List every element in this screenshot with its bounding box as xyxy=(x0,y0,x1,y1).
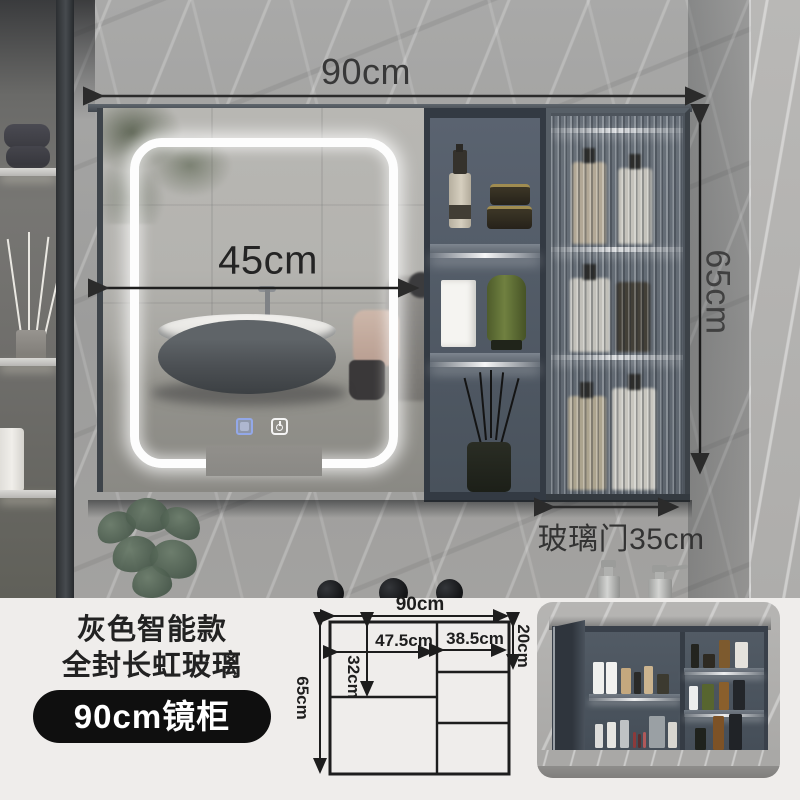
diffuser-vessel xyxy=(16,330,46,360)
height-dimension-label: 65cm xyxy=(698,249,737,334)
glass-door-dimension-label: 玻璃门35cm xyxy=(538,514,705,558)
thumb-jar xyxy=(703,654,715,668)
shelf-board xyxy=(430,353,540,362)
diagram-door-width-label: 38.5cm xyxy=(446,629,504,649)
niche-shelf xyxy=(0,358,56,366)
thumb-tube xyxy=(621,668,631,694)
size-badge: 90cm镜柜 xyxy=(33,690,271,743)
thumb-led xyxy=(589,698,680,701)
spray-bottle xyxy=(449,173,471,228)
marble-light-panel xyxy=(751,0,800,598)
thumb-pump-bottle xyxy=(713,716,724,750)
diagram-upper-height-label: 32cm xyxy=(343,655,363,698)
towel-roll xyxy=(4,124,50,148)
diagram-width-label: 90cm xyxy=(396,594,445,616)
shelf-led-strip xyxy=(430,362,540,367)
width-dimension-label: 90cm xyxy=(321,51,411,93)
spec-diagram-lines xyxy=(285,594,535,794)
thumb-flask xyxy=(657,674,669,694)
led-mirror-door xyxy=(97,108,424,492)
reed-diffuser xyxy=(467,442,511,492)
thumb-led xyxy=(684,714,764,717)
side-niche xyxy=(0,0,56,598)
thumb-pump-bottle xyxy=(729,714,742,750)
thumb-bottle xyxy=(668,722,677,748)
spec-diagram: 90cm 65cm 47.5cm 38.5cm 32cm 20cm xyxy=(285,594,535,794)
thumb-floor xyxy=(537,766,780,778)
diffuser-stick xyxy=(490,370,492,438)
led-border-gap xyxy=(206,446,322,476)
thumb-bottle xyxy=(719,682,729,710)
thumb-bottle xyxy=(607,722,616,748)
diagram-height-label: 65cm xyxy=(292,676,312,719)
led-light-border xyxy=(130,138,398,468)
shelf-board xyxy=(430,244,540,253)
thumb-lipstick xyxy=(643,732,646,748)
green-tube-cap xyxy=(491,340,522,350)
title-line-1: 灰色智能款 xyxy=(18,612,286,648)
thumb-led xyxy=(684,672,764,675)
info-panel: 灰色智能款 全封长虹玻璃 90cm镜柜 xyxy=(0,598,800,800)
cream-jar xyxy=(490,184,530,205)
niche-shelf xyxy=(0,490,56,498)
fluted-texture xyxy=(551,116,683,494)
thumb-lipstick xyxy=(633,732,636,748)
thumb-open-door xyxy=(553,620,585,760)
niche-shelf xyxy=(0,168,56,176)
thumb-divider xyxy=(680,632,685,750)
shelf-led-strip xyxy=(430,253,540,258)
glass-pane xyxy=(551,116,683,494)
spray-bottle-cap xyxy=(453,150,467,174)
thumb-bottle xyxy=(634,672,641,694)
power-touch-icon[interactable] xyxy=(271,418,288,435)
thumb-bottle xyxy=(691,644,699,668)
towel-roll xyxy=(6,146,50,168)
product-image: 90cm 45cm 65cm 玻璃门35cm 灰色智能款 全封长虹玻璃 90cm… xyxy=(0,0,800,800)
thumb-diffuser xyxy=(695,728,706,750)
thumb-bottle xyxy=(620,720,629,748)
mirror-width-dimension-label: 45cm xyxy=(218,239,318,284)
power-bar xyxy=(279,421,281,426)
thumb-box xyxy=(644,666,653,694)
thumb-pump-bottle xyxy=(735,642,748,668)
niche-frame xyxy=(56,0,74,598)
product-title: 灰色智能款 全封长虹玻璃 xyxy=(18,612,286,684)
cosmetic-box xyxy=(441,280,476,347)
soap-dispenser xyxy=(648,579,672,598)
thumb-box xyxy=(689,686,698,710)
thumb-carton xyxy=(606,662,617,694)
thumb-carton xyxy=(593,662,604,694)
thumb-green-tube xyxy=(702,684,714,710)
diagram-mirror-width-label: 47.5cm xyxy=(375,631,433,651)
thumb-lipstick xyxy=(638,734,641,748)
open-shelf-section xyxy=(424,108,546,502)
diffuser-stick xyxy=(28,232,30,342)
thumb-bottle xyxy=(595,724,603,748)
spray-bottle-label xyxy=(449,205,471,219)
cream-jar xyxy=(487,206,532,229)
thumb-pump-bottle xyxy=(719,640,730,668)
green-tube xyxy=(487,275,526,341)
soap-dispenser xyxy=(597,576,620,598)
thumb-brush-cup xyxy=(649,716,665,748)
thumb-bottle xyxy=(733,680,745,710)
diagram-shelf-height-label: 20cm xyxy=(513,624,533,667)
open-cabinet-photo xyxy=(537,602,780,778)
lotion-bottle xyxy=(0,428,24,492)
defog-touch-icon[interactable] xyxy=(236,418,253,435)
spray-nozzle xyxy=(456,144,463,152)
title-line-2: 全封长虹玻璃 xyxy=(18,648,286,684)
